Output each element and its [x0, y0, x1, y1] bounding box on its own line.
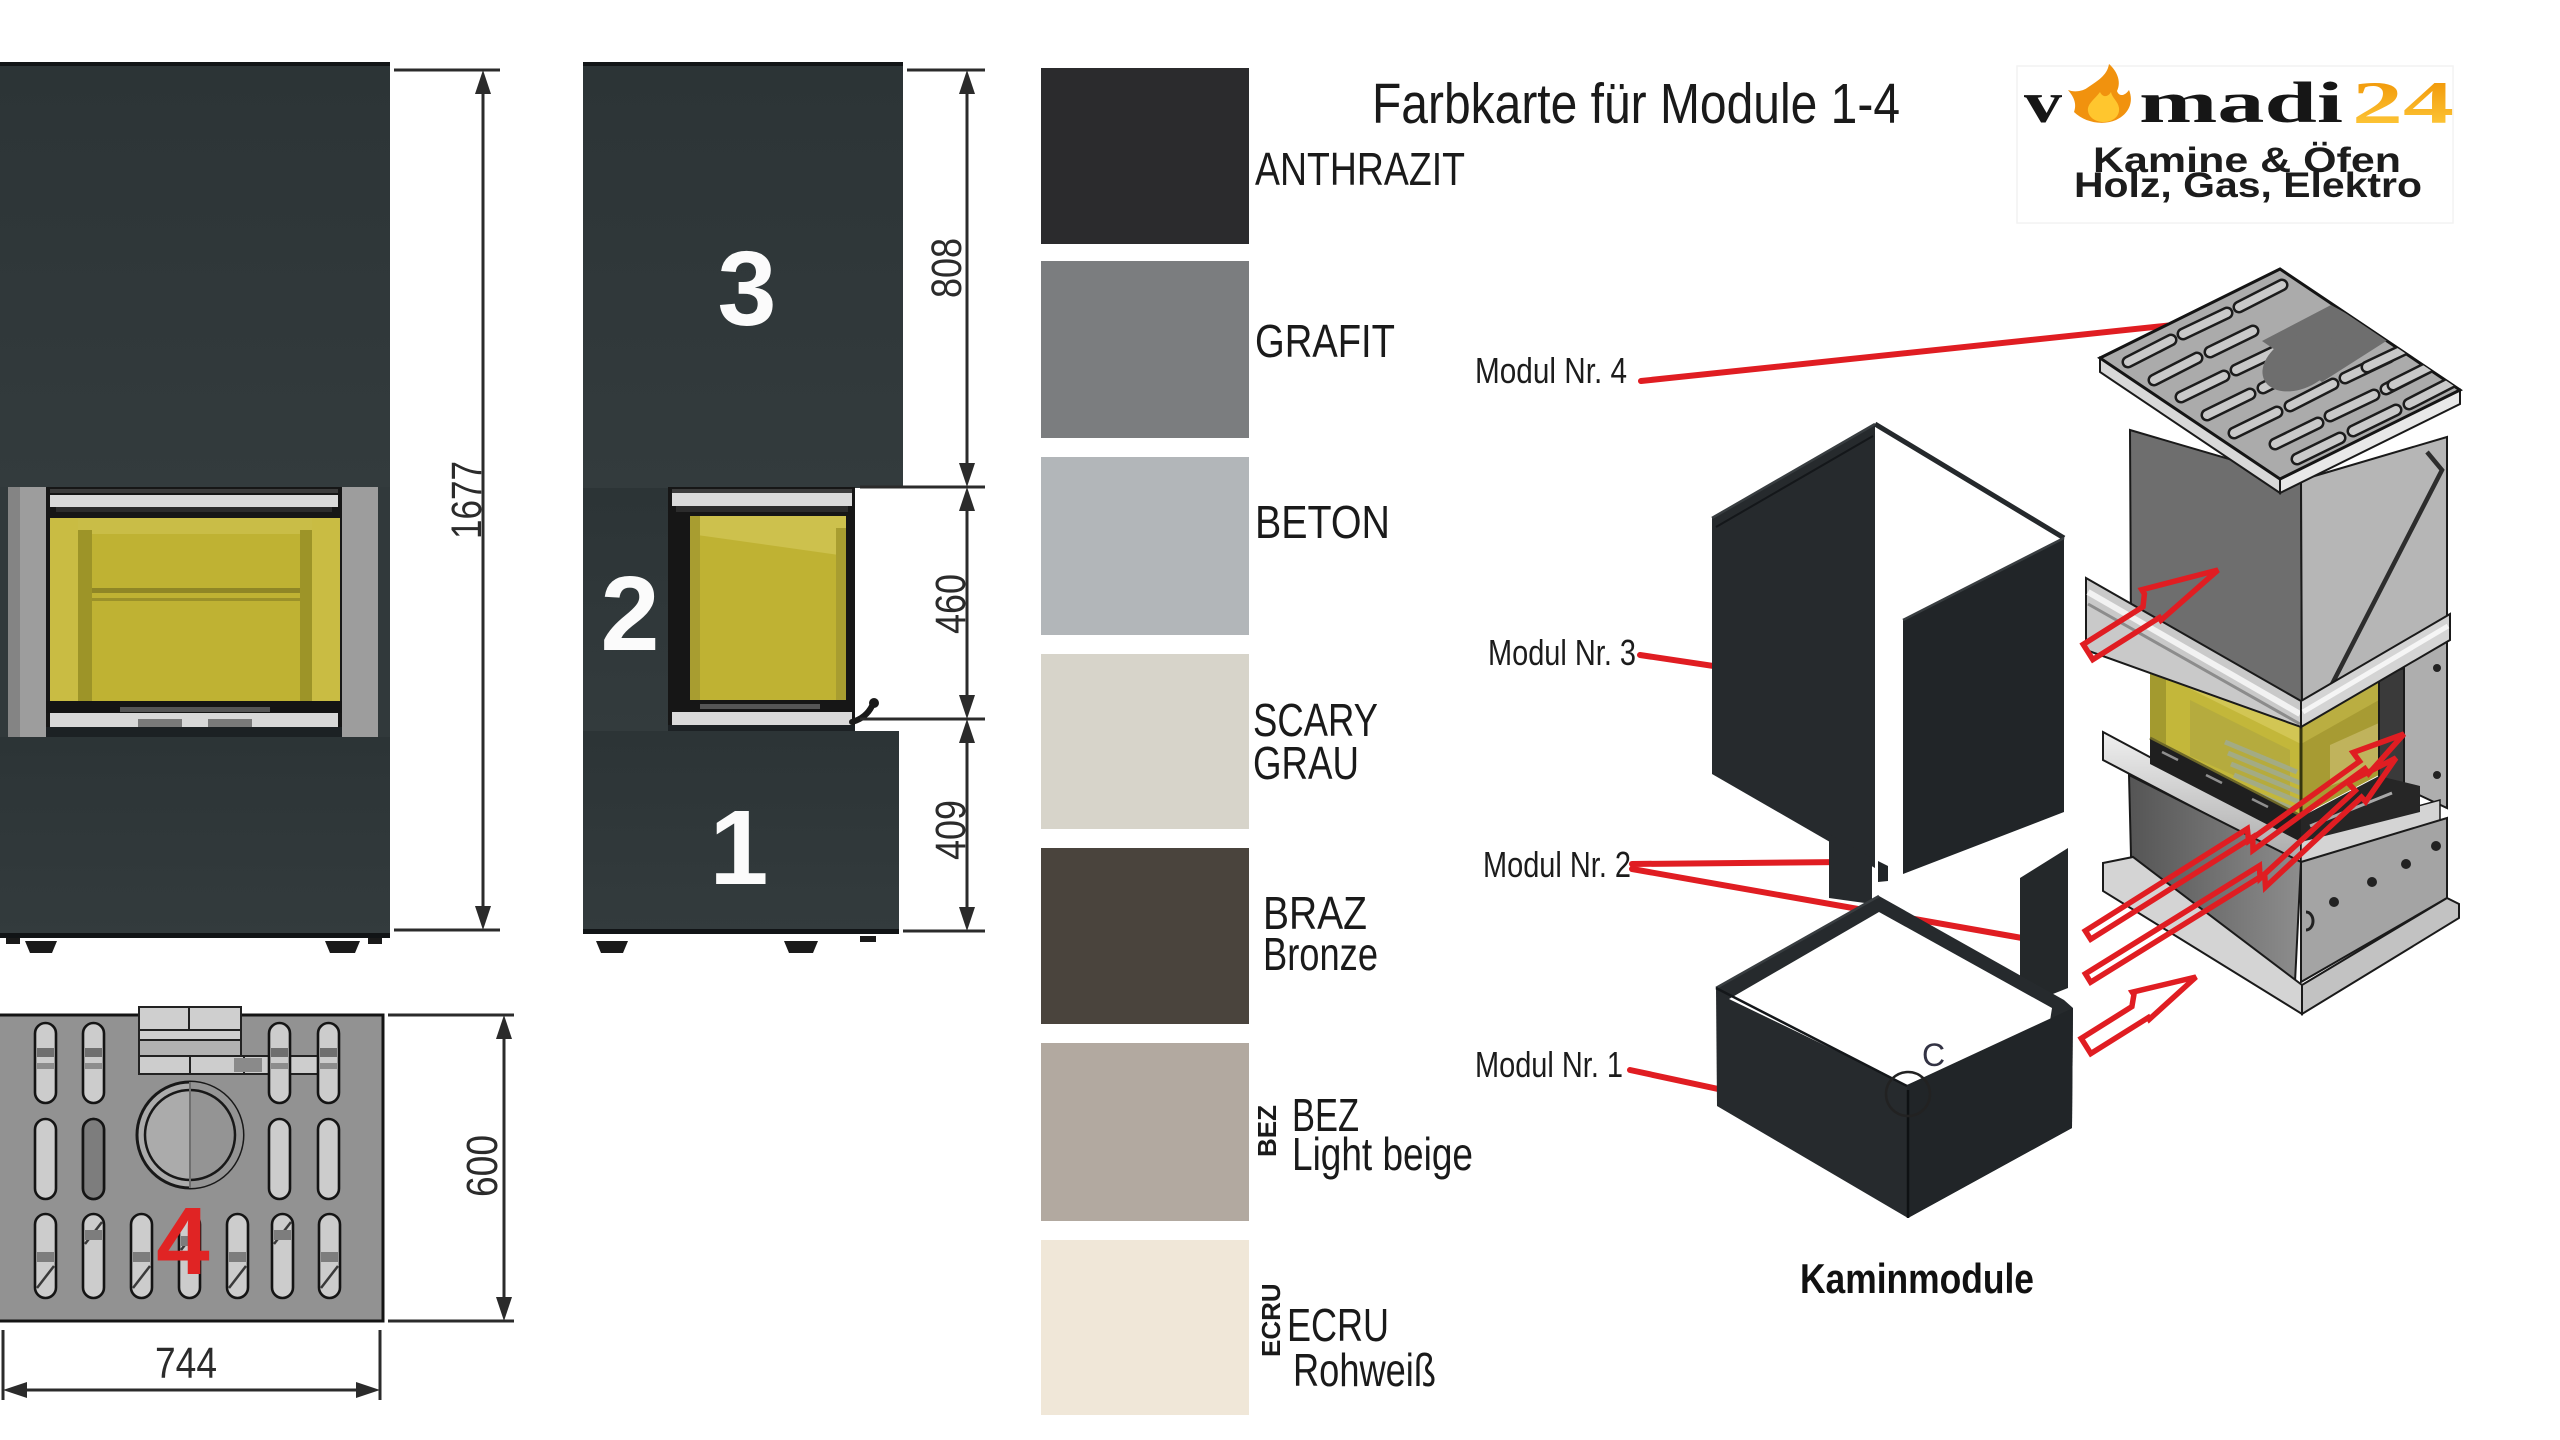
svg-text:808: 808 [923, 238, 971, 298]
svg-text:Modul Nr. 4: Modul Nr. 4 [1475, 350, 1627, 391]
svg-text:BEZ: BEZ [1252, 1105, 1282, 1157]
svg-text:1: 1 [710, 789, 769, 907]
svg-text:24: 24 [2352, 70, 2454, 136]
svg-text:600: 600 [458, 1135, 507, 1197]
svg-text:744: 744 [155, 1339, 217, 1388]
svg-text:Farbkarte für Module 1-4: Farbkarte für Module 1-4 [1372, 72, 1900, 136]
svg-text:409: 409 [927, 800, 975, 860]
svg-text:GRAU: GRAU [1253, 737, 1359, 789]
svg-text:ANTHRAZIT: ANTHRAZIT [1255, 143, 1465, 195]
svg-text:Modul Nr. 3: Modul Nr. 3 [1488, 632, 1636, 673]
svg-text:3: 3 [718, 230, 777, 348]
svg-text:C: C [1922, 1037, 1945, 1073]
svg-text:1677: 1677 [443, 461, 491, 539]
svg-text:2: 2 [601, 555, 660, 673]
svg-text:Holz, Gas, Elektro: Holz, Gas, Elektro [2074, 166, 2422, 205]
svg-text:Kaminmodule: Kaminmodule [1800, 1255, 2034, 1302]
svg-text:Bronze: Bronze [1263, 928, 1378, 980]
svg-text:Light beige: Light beige [1292, 1128, 1473, 1180]
svg-text:BETON: BETON [1255, 496, 1390, 548]
svg-text:ECRU: ECRU [1256, 1283, 1286, 1357]
svg-text:Modul Nr. 1: Modul Nr. 1 [1475, 1044, 1623, 1085]
svg-text:v: v [2024, 70, 2062, 135]
svg-text:460: 460 [927, 574, 975, 634]
svg-text:Rohweiß: Rohweiß [1293, 1344, 1436, 1396]
svg-text:madi: madi [2139, 70, 2343, 135]
svg-text:Modul Nr. 2: Modul Nr. 2 [1483, 844, 1631, 885]
svg-text:4: 4 [156, 1188, 209, 1295]
svg-text:GRAFIT: GRAFIT [1255, 315, 1395, 367]
